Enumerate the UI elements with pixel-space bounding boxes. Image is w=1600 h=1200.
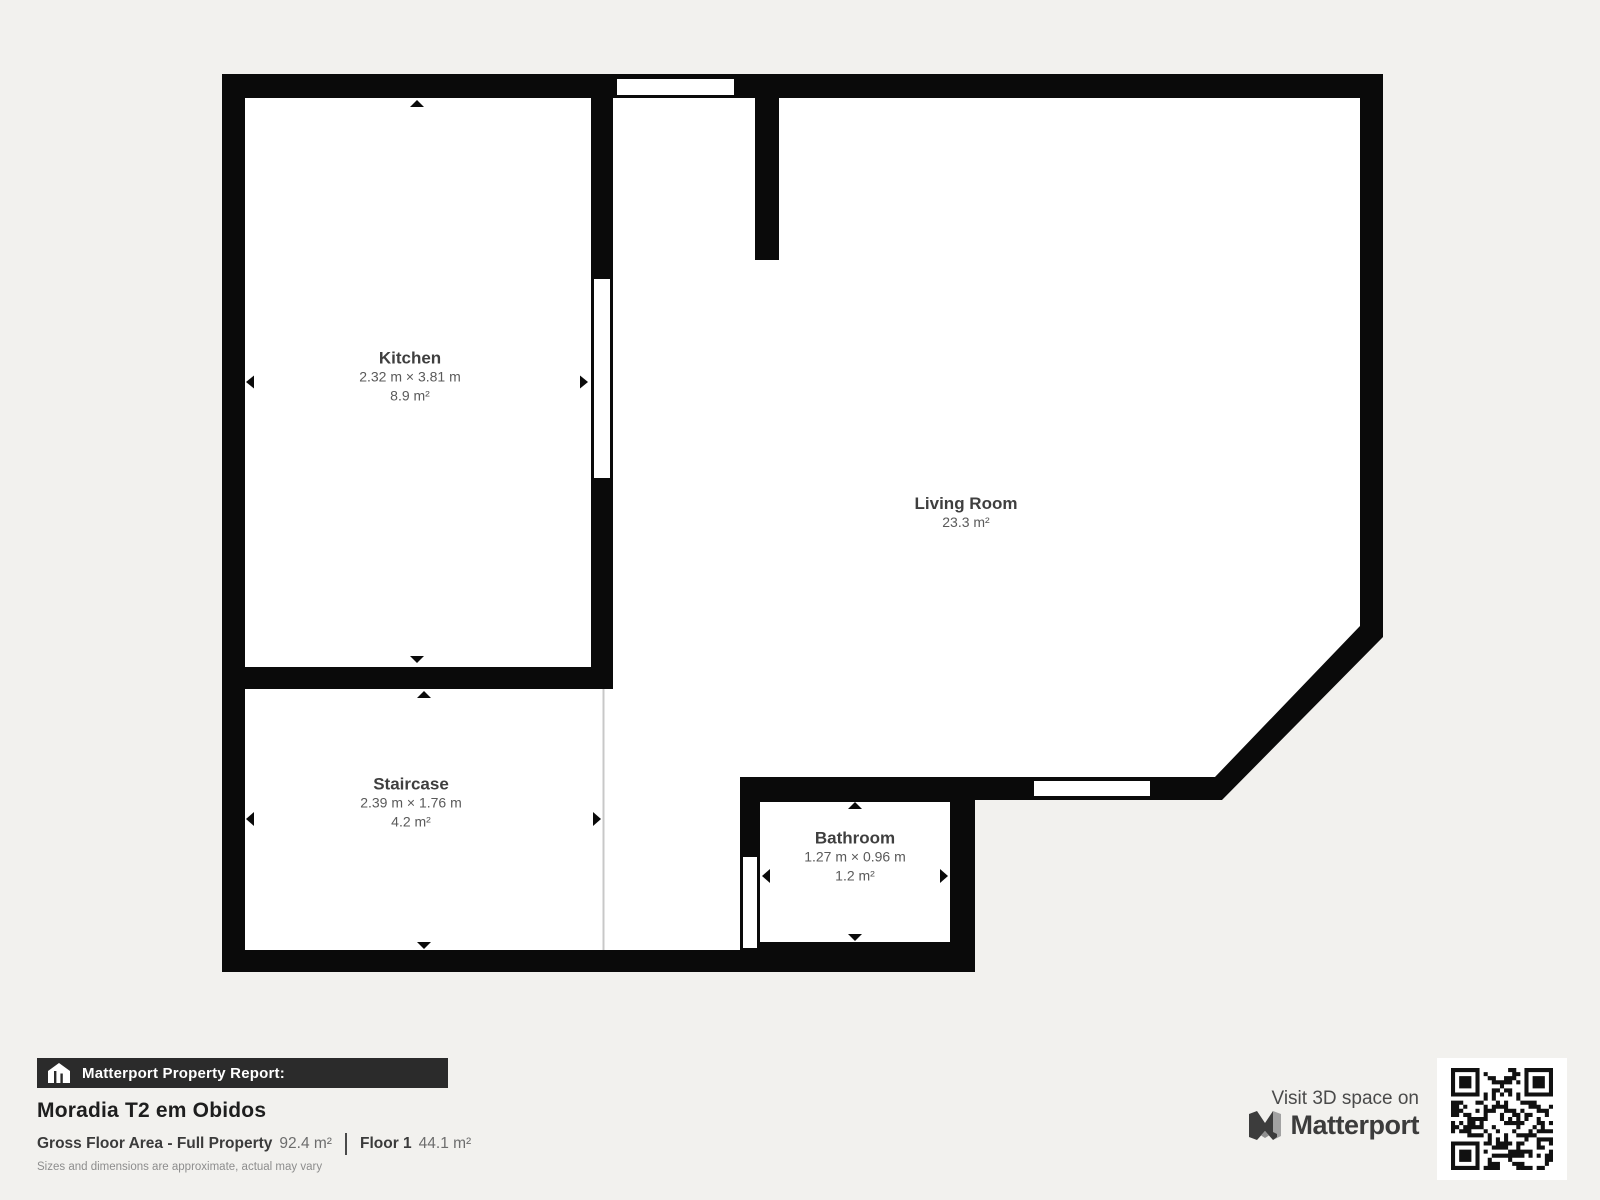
top-wall-opening bbox=[617, 79, 734, 95]
gross-floor-area-label: Gross Floor Area - Full Property bbox=[37, 1135, 272, 1153]
house-icon bbox=[48, 1063, 70, 1083]
property-title: Moradia T2 em Obidos bbox=[37, 1099, 266, 1123]
matterport-logo: Matterport bbox=[1249, 1110, 1420, 1141]
visit-3d-text: Visit 3D space on bbox=[1271, 1088, 1419, 1110]
disclaimer-text: Sizes and dimensions are approximate, ac… bbox=[37, 1161, 322, 1173]
property-report-page: { "plan": { "rooms": [ { "name": "Kitche… bbox=[0, 0, 1600, 1200]
staircase-floor bbox=[245, 689, 613, 950]
entry-wall-stub bbox=[755, 98, 779, 260]
floor-value: 44.1 m² bbox=[419, 1135, 472, 1153]
bathroom-door-opening bbox=[743, 857, 757, 948]
matterport-wordmark: Matterport bbox=[1291, 1110, 1420, 1141]
kitchen-window bbox=[594, 279, 610, 478]
gross-floor-area-value: 92.4 m² bbox=[279, 1135, 332, 1153]
kitchen-floor bbox=[245, 98, 591, 667]
living-room-window bbox=[1034, 781, 1150, 796]
floor-plan bbox=[0, 0, 1600, 1200]
area-stats: Gross Floor Area - Full Property 92.4 m²… bbox=[37, 1133, 471, 1155]
stats-divider bbox=[345, 1133, 347, 1155]
living-room-floor bbox=[613, 98, 1360, 950]
matterport-m-icon bbox=[1249, 1111, 1281, 1141]
qr-code bbox=[1437, 1058, 1567, 1180]
qr-code-pattern bbox=[1451, 1068, 1553, 1170]
report-header-text: Matterport Property Report: bbox=[82, 1065, 285, 1082]
floor-label: Floor 1 bbox=[360, 1135, 412, 1153]
report-header-bar: Matterport Property Report: bbox=[37, 1058, 448, 1088]
bathroom-floor bbox=[760, 802, 950, 942]
kitchen-staircase-wall bbox=[222, 667, 613, 689]
